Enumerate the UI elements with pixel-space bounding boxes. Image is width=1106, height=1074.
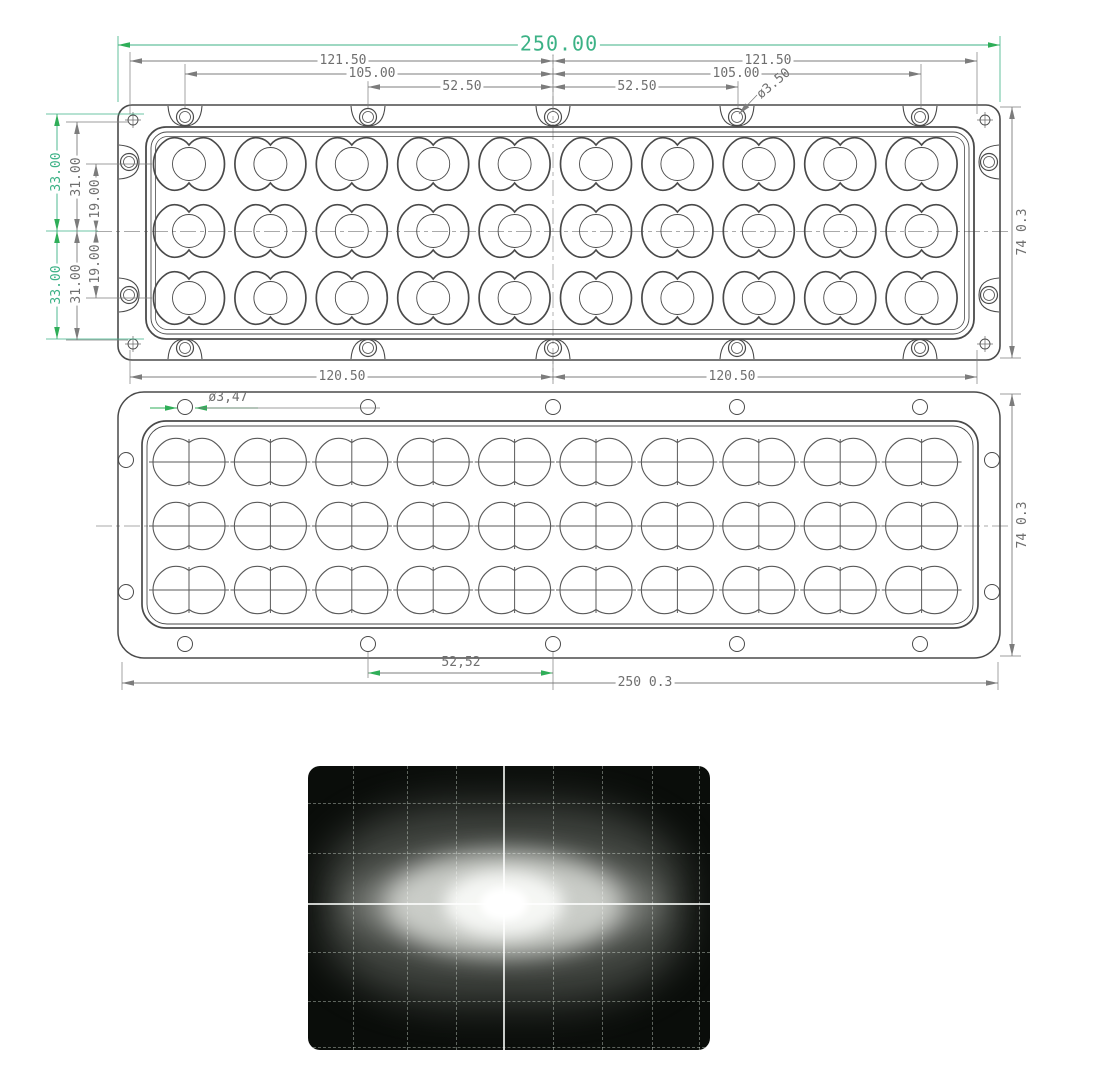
front-lens — [561, 205, 632, 258]
front-lens — [316, 272, 387, 325]
back-lens — [393, 566, 473, 613]
crosshair-vertical — [503, 766, 505, 1050]
back-lens — [230, 566, 310, 613]
front-lens — [723, 272, 794, 325]
dim-hole-diameter-back: ø3,47 — [206, 391, 249, 405]
back-lens — [475, 566, 555, 613]
front-lens — [723, 205, 794, 258]
grid-line-vertical — [407, 766, 408, 1050]
front-lens — [886, 138, 957, 191]
back-lens — [882, 438, 962, 485]
grid-line-horizontal — [308, 1047, 710, 1048]
back-lens — [556, 438, 636, 485]
back-lens — [719, 438, 799, 485]
front-lens — [642, 205, 713, 258]
back-lens — [882, 566, 962, 613]
back-lens — [719, 566, 799, 613]
back-lens — [800, 502, 880, 549]
front-lens — [154, 272, 225, 325]
dim-bottom-span-right: 120.50 — [707, 370, 758, 384]
grid-line-vertical — [602, 766, 603, 1050]
back-lens — [230, 438, 310, 485]
front-lens — [235, 272, 306, 325]
dim-overall-width-back: 250 0.3 — [616, 676, 675, 690]
dim-side-hole-offset-bottom: 31.00 — [70, 262, 84, 305]
back-lens — [719, 502, 799, 549]
front-lens — [235, 138, 306, 191]
dim-center-hole-pitch: 52,52 — [439, 656, 482, 670]
back-lens — [475, 438, 555, 485]
dim-half-height-top: 33.00 — [50, 150, 64, 193]
front-lens — [561, 272, 632, 325]
dim-half-pitch-right: 52.50 — [615, 80, 658, 94]
dim-bottom-span-left: 120.50 — [317, 370, 368, 384]
front-lens — [398, 138, 469, 191]
grid-line-horizontal — [308, 853, 710, 854]
grid-line-vertical — [456, 766, 457, 1050]
back-lens — [637, 566, 717, 613]
dim-side-hole-offset-top: 31.00 — [70, 155, 84, 198]
back-lens — [882, 502, 962, 549]
back-lens — [312, 566, 392, 613]
dim-hole-pitch-left: 105.00 — [347, 67, 398, 81]
grid-line-horizontal — [308, 952, 710, 953]
front-lens — [642, 272, 713, 325]
front-lens — [479, 205, 550, 258]
photometric-test-image — [308, 766, 710, 1050]
front-lens — [805, 272, 876, 325]
grid-line-horizontal — [308, 1001, 710, 1002]
back-lens — [149, 566, 229, 613]
front-lens — [479, 272, 550, 325]
back-lens — [800, 438, 880, 485]
drawing-sheet: 250.00 121.50 121.50 105.00 105.00 52.50… — [0, 0, 1106, 1074]
back-lens — [637, 438, 717, 485]
back-lens — [393, 502, 473, 549]
front-lens — [235, 205, 306, 258]
front-lens — [886, 272, 957, 325]
front-lens — [805, 205, 876, 258]
front-lens — [723, 138, 794, 191]
dim-overall-width-front: 250.00 — [518, 34, 600, 55]
front-lens — [561, 138, 632, 191]
front-lens — [886, 205, 957, 258]
dim-row-offset-bottom: 19.00 — [89, 242, 103, 285]
grid-line-vertical — [553, 766, 554, 1050]
grid-line-horizontal — [308, 803, 710, 804]
front-lens — [316, 138, 387, 191]
back-lens — [230, 502, 310, 549]
back-lens — [556, 566, 636, 613]
back-lens — [475, 502, 555, 549]
dim-overall-height-back: 74 0.3 — [1016, 500, 1030, 551]
front-lens — [805, 138, 876, 191]
front-lens-array — [154, 138, 958, 325]
dim-half-height-bottom: 33.00 — [50, 263, 64, 306]
dim-hole-pitch-right: 105.00 — [711, 67, 762, 81]
front-lens — [642, 138, 713, 191]
back-lens — [556, 502, 636, 549]
back-lens — [312, 438, 392, 485]
front-lens — [316, 205, 387, 258]
front-lens — [398, 272, 469, 325]
back-lens — [312, 502, 392, 549]
back-lens — [800, 566, 880, 613]
dim-half-pitch-left: 52.50 — [440, 80, 483, 94]
back-lens — [149, 438, 229, 485]
dim-row-offset-top: 19.00 — [89, 177, 103, 220]
front-lens — [479, 138, 550, 191]
back-lens — [149, 502, 229, 549]
dim-overall-height-front: 74 0.3 — [1016, 207, 1030, 258]
grid-line-vertical — [353, 766, 354, 1050]
front-lens — [154, 205, 225, 258]
cad-linework — [0, 0, 1106, 720]
back-lens — [393, 438, 473, 485]
front-lens — [398, 205, 469, 258]
crosshair-horizontal — [308, 903, 710, 905]
grid-line-vertical — [699, 766, 700, 1050]
back-lens — [637, 502, 717, 549]
front-lens — [154, 138, 225, 191]
grid-line-vertical — [652, 766, 653, 1050]
